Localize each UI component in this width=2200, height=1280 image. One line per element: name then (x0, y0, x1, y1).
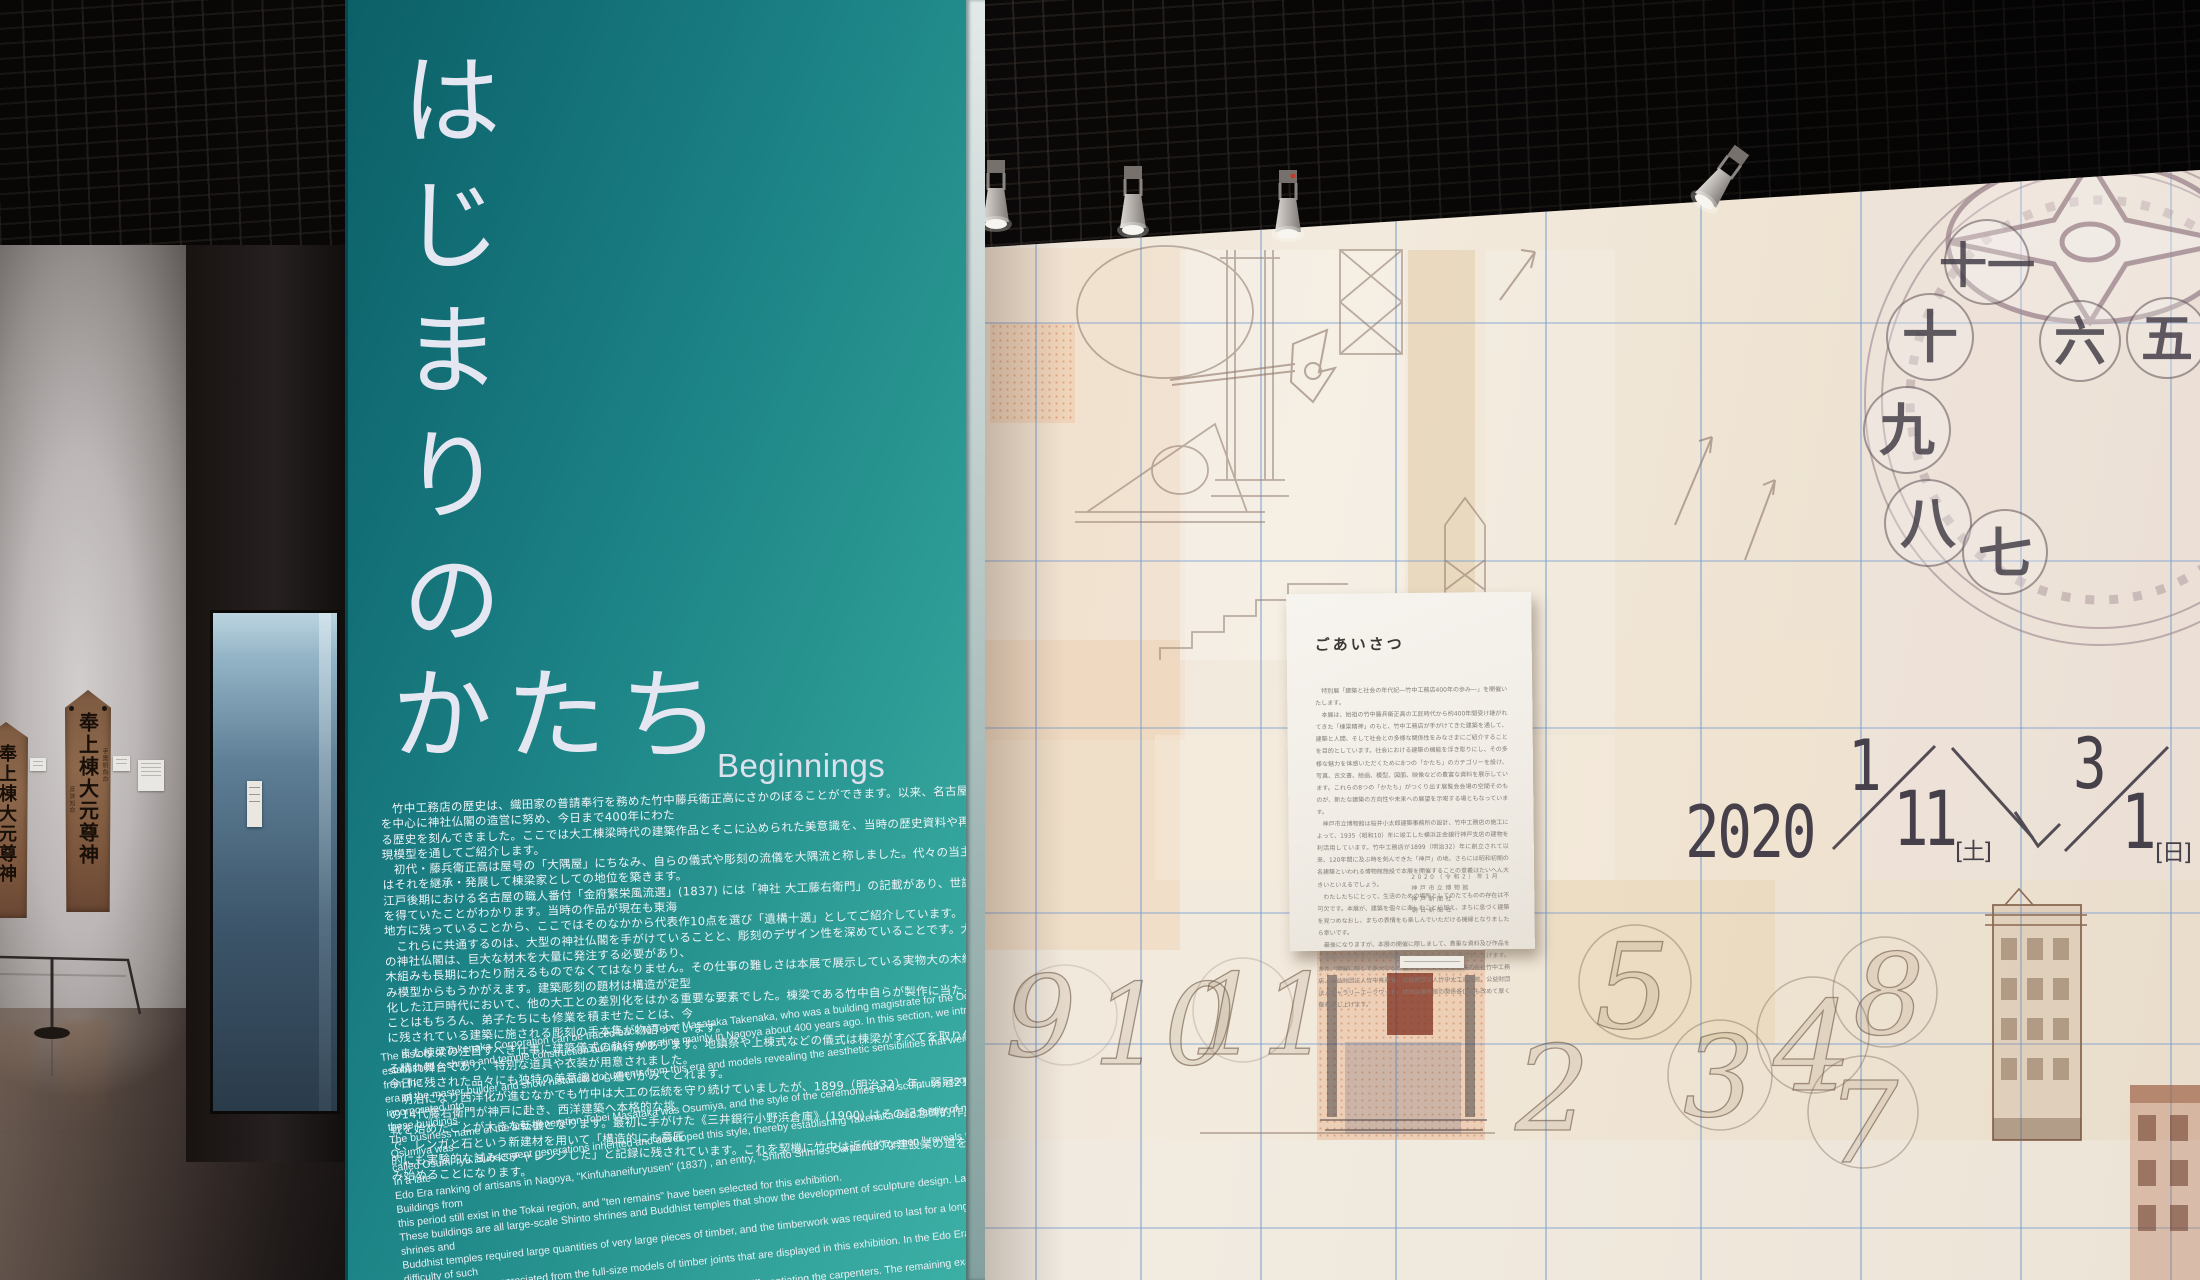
clock-numeral: 十 (1902, 306, 1958, 371)
panel-side-edge (966, 0, 985, 1280)
munafuda-tablet-left: 奉上棟大元尊神 (0, 722, 28, 918)
date-strokes (1833, 746, 2168, 851)
spotlight (1117, 166, 1149, 238)
greeting-credits: 2020（令和2）年1月 神戸市立博物館 神戸新聞社 朝日新聞社 (1411, 871, 1500, 916)
date-start-month: 1 (1848, 735, 1882, 798)
panel-title-horizontal: かたち (392, 666, 734, 766)
clock-numeral: 七 (1978, 522, 2032, 585)
sketch-numeral: 8 (1853, 940, 1924, 1052)
panel-title-vertical: はじまりの (392, 48, 492, 673)
clock-numeral: 五 (2141, 310, 2193, 370)
caption-card (138, 760, 164, 791)
rope-barrier (0, 930, 200, 1090)
spotlight (1272, 170, 1304, 242)
date-end-weekday: [日] (2155, 833, 2190, 867)
nail-icon (69, 706, 74, 711)
display-case (186, 245, 348, 1162)
led-indicator-icon (1291, 174, 1296, 179)
sketch-numeral: 3 (1683, 1022, 1754, 1134)
glass-reflection (319, 613, 331, 1111)
tablet-left-text: 奉上棟大元尊神 (0, 744, 19, 884)
date-start-weekday: [土] (1955, 832, 1990, 866)
caption-card (30, 758, 46, 771)
spotlight (1687, 141, 1755, 218)
tablet-right-text: 奉上棟大元尊神 (74, 712, 103, 866)
display-case-glass (210, 610, 340, 1114)
date-start-day: 11 (1893, 785, 1952, 853)
clock-numeral: 六 (2054, 313, 2106, 373)
greeting-heading: ごあいさつ (1315, 633, 1405, 655)
panel-title-english: Beginnings (717, 747, 885, 785)
date-end-month: 3 (2073, 733, 2107, 796)
date-year: 2020 (1685, 800, 1814, 865)
facade-sketch-b (2130, 1085, 2200, 1280)
sketch-numeral: 2 (1515, 1030, 1590, 1148)
clock-numeral: 九 (1879, 399, 1935, 464)
left-gallery-wall: 奉上棟大元尊神 奉上棟大元尊神 手置帆負命 彦狭知命 (0, 245, 188, 1020)
clock-numeral: 八 (1900, 492, 1957, 557)
tablet-side-text-right: 手置帆負命 (100, 748, 109, 783)
sketch-numeral: 5 (1595, 928, 1670, 1046)
caption-strip (1400, 956, 1464, 968)
sketch-numeral: 7 (1827, 1068, 1898, 1180)
title-panel: はじまりの かたち Beginnings 竹中工務店の歴史は、織田家の普請奉行を… (345, 0, 985, 1280)
tablet-side-text-left: 彦狭知命 (67, 786, 76, 814)
sketch-numeral: 11 (1190, 960, 1333, 1072)
greeting-sign-panel: ごあいさつ 特別展「建築と社会の年代記―竹中工務店400年の歩み―」を開催いたし… (1286, 592, 1535, 952)
nail-icon (102, 706, 107, 711)
date-end-day: 1 (2121, 788, 2157, 856)
displayed-scroll (247, 781, 262, 827)
facade-sketch-a (1985, 889, 2087, 1140)
track-lighting (0, 0, 2200, 300)
exhibition-photo: 奉上棟大元尊神 奉上棟大元尊神 手置帆負命 彦狭知命 (0, 0, 2200, 1280)
caption-card (113, 756, 130, 771)
munafuda-tablet-right: 奉上棟大元尊神 手置帆負命 彦狭知命 (65, 690, 111, 912)
